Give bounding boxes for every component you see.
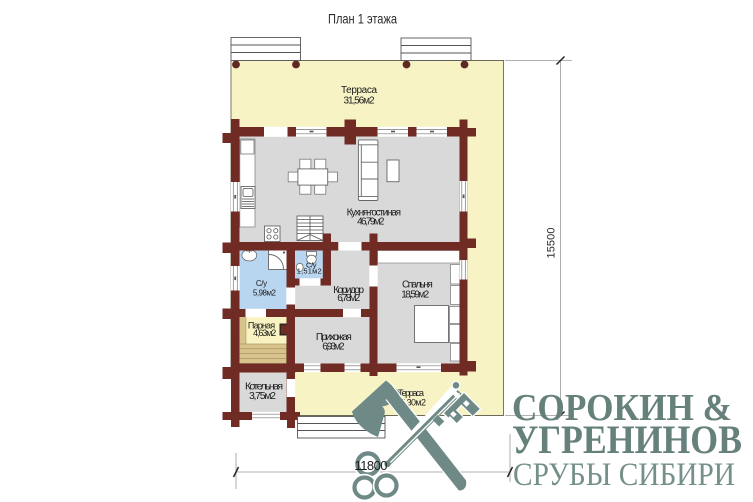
svg-text:6,78м2: 6,78м2	[337, 293, 360, 304]
svg-text:18,59м2: 18,59м2	[401, 289, 429, 300]
svg-text:СРУБЫ СИБИРИ: СРУБЫ СИБИРИ	[513, 457, 735, 493]
svg-text:3,75м2: 3,75м2	[249, 390, 276, 402]
svg-text:Терраса: Терраса	[341, 85, 377, 96]
svg-text:5,98м2: 5,98м2	[253, 289, 277, 298]
svg-text:План 1 этажа: План 1 этажа	[328, 11, 397, 27]
svg-text:15500: 15500	[546, 228, 558, 259]
svg-text:11800: 11800	[355, 458, 388, 473]
svg-text:1,51м2: 1,51м2	[297, 267, 322, 276]
svg-text:6,93м2: 6,93м2	[322, 341, 345, 352]
svg-text:УГРЕНИНОВ: УГРЕНИНОВ	[512, 417, 742, 462]
svg-text:Терраса: Терраса	[398, 388, 424, 398]
svg-text:4,63м2: 4,63м2	[253, 328, 276, 338]
svg-text:46,79м2: 46,79м2	[357, 217, 385, 228]
svg-text:31,56м2: 31,56м2	[344, 96, 375, 107]
svg-text:С/у: С/у	[256, 279, 267, 288]
